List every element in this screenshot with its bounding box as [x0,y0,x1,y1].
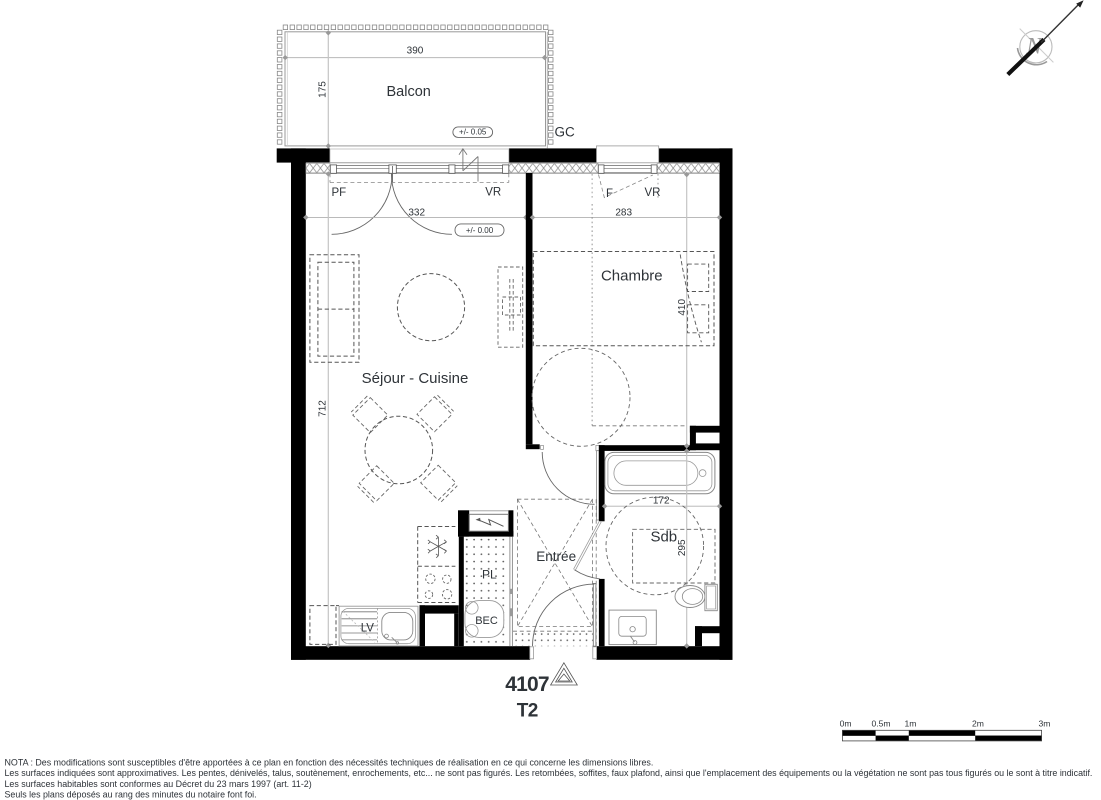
svg-text:VR: VR [645,187,661,199]
svg-text:0.5m: 0.5m [871,718,890,728]
svg-text:F: F [606,188,613,200]
svg-text:+/- 0.00: +/- 0.00 [466,226,494,235]
svg-text:VR: VR [485,187,501,199]
svg-text:Entrée: Entrée [536,549,576,564]
svg-text:T2: T2 [517,701,538,722]
svg-text:Chambre: Chambre [601,267,663,284]
svg-text:PL: PL [482,568,497,582]
svg-text:175: 175 [318,81,329,98]
svg-text:172: 172 [653,496,670,507]
svg-text:Les surfaces habitables sont c: Les surfaces habitables sont conformes a… [5,779,312,789]
svg-text:2m: 2m [972,718,984,728]
svg-text:Balcon: Balcon [387,84,431,100]
svg-text:0m: 0m [840,718,852,728]
svg-text:3m: 3m [1039,718,1051,728]
svg-text:390: 390 [407,46,424,57]
svg-text:LV: LV [361,622,375,634]
svg-text:1m: 1m [905,718,917,728]
svg-text:295: 295 [677,539,688,556]
svg-text:712: 712 [318,400,329,417]
svg-text:410: 410 [677,299,688,316]
svg-text:+/- 0.05: +/- 0.05 [459,128,487,137]
svg-text:PF: PF [332,187,347,199]
svg-text:Séjour - Cuisine: Séjour - Cuisine [362,370,469,387]
svg-text:Sdb: Sdb [650,529,677,546]
svg-text:GC: GC [555,125,576,140]
svg-text:Seuls les plans déposés au ran: Seuls les plans déposés au rang des minu… [5,790,257,800]
svg-text:4107: 4107 [505,673,549,696]
svg-text:BEC: BEC [475,615,498,627]
svg-text:283: 283 [615,208,632,219]
svg-text:Les surfaces indiquées sont ap: Les surfaces indiquées sont approximativ… [5,768,1093,778]
svg-text:NOTA : Des modifications sont: NOTA : Des modifications sont susceptibl… [5,758,654,768]
svg-text:332: 332 [408,208,425,219]
